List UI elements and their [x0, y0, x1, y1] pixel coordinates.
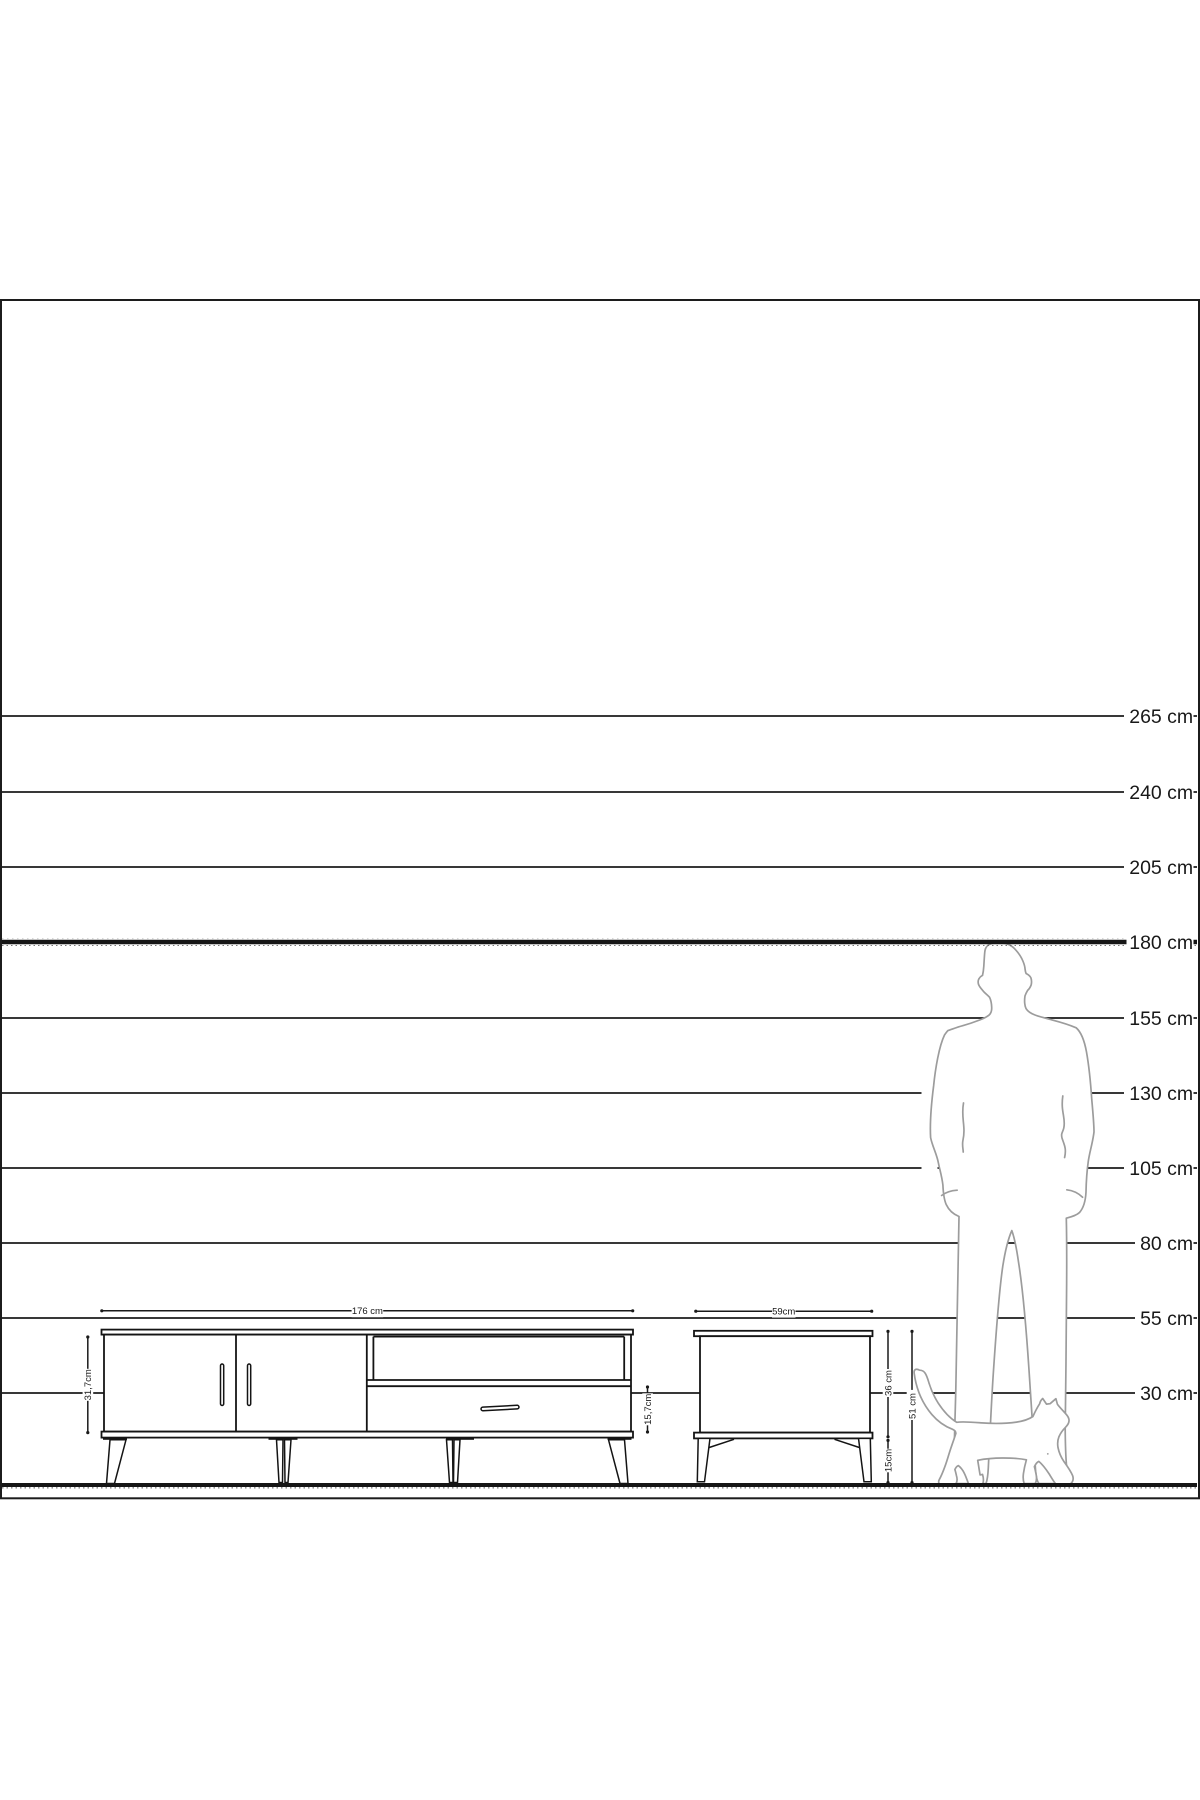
svg-text:176 cm: 176 cm [352, 1306, 383, 1317]
svg-text:31,7cm: 31,7cm [83, 1369, 94, 1400]
svg-text:180 cm: 180 cm [1129, 932, 1193, 954]
svg-text:265 cm: 265 cm [1129, 706, 1193, 728]
svg-text:36 cm: 36 cm [883, 1370, 894, 1396]
svg-text:240 cm: 240 cm [1129, 782, 1193, 804]
svg-text:15cm: 15cm [883, 1449, 894, 1472]
svg-text:51 cm: 51 cm [907, 1393, 918, 1419]
svg-text:130 cm: 130 cm [1129, 1083, 1193, 1105]
svg-text:80 cm: 80 cm [1140, 1233, 1193, 1255]
svg-text:105 cm: 105 cm [1129, 1158, 1193, 1180]
svg-text:59cm: 59cm [772, 1307, 795, 1318]
svg-text:55 cm: 55 cm [1140, 1308, 1193, 1330]
svg-text:155 cm: 155 cm [1129, 1008, 1193, 1030]
svg-text:205 cm: 205 cm [1129, 857, 1193, 879]
svg-text:15,7cm: 15,7cm [643, 1394, 654, 1425]
svg-text:30 cm: 30 cm [1140, 1383, 1193, 1405]
